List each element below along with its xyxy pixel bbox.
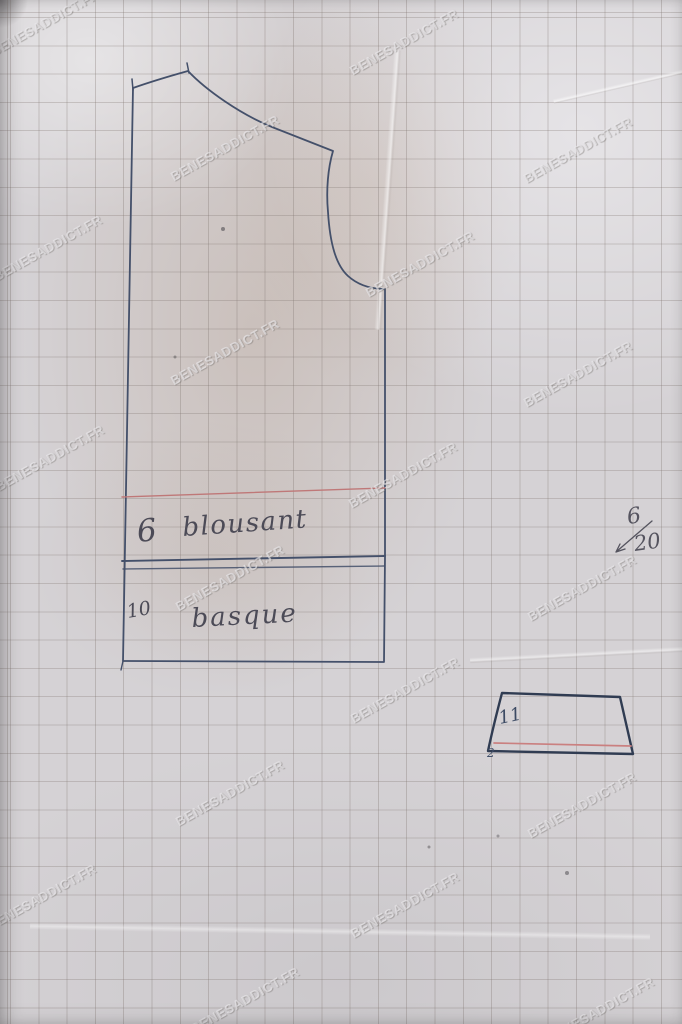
sewing-pattern-photo: 6 blousant 10 basque 6 20 11 2 BENESADDI… <box>0 0 682 1024</box>
photo-vignette <box>0 0 682 1024</box>
